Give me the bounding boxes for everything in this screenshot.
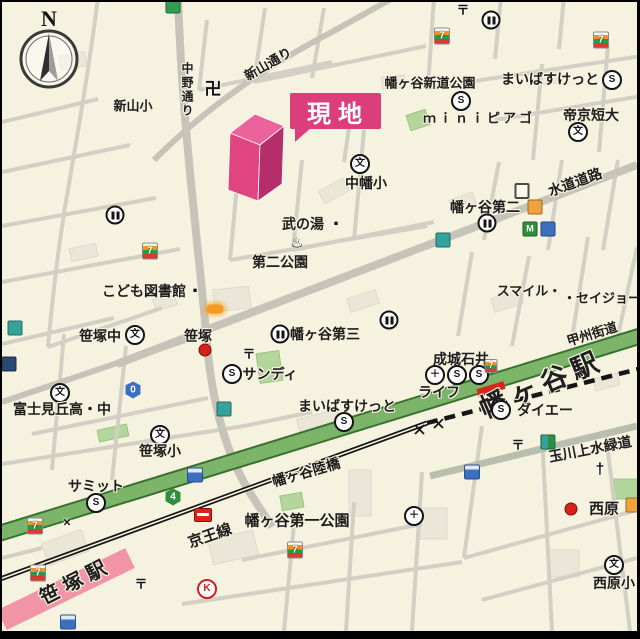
- label-shinyama-elementary: 新山小: [113, 100, 152, 113]
- school-icon: 文: [568, 122, 588, 142]
- compass-north-label: N: [41, 6, 57, 31]
- school-icon: 文: [150, 425, 170, 445]
- site-callout-text: 現地: [307, 94, 369, 129]
- building-dot: ■: [334, 221, 338, 228]
- label-hatagaya-daiichi-park: 幡ヶ谷第一公園: [244, 514, 349, 529]
- store-icon-teal: [436, 233, 451, 248]
- seven-eleven-icon: 7: [142, 243, 158, 260]
- supermarket-icon: S: [222, 364, 242, 384]
- label-seijo: ・セイジョー: [563, 292, 637, 305]
- bank-icon: [60, 615, 76, 630]
- post-office-icon: 〒: [456, 4, 469, 17]
- post-office-icon: 〒: [242, 348, 255, 361]
- label-mini-piago: ｍｉｎｉピアゴ: [423, 112, 535, 125]
- poi-circle-icon: [478, 214, 497, 233]
- poi-circle-icon: [482, 11, 501, 30]
- label-nakahata-elementary: 中幡小: [345, 176, 387, 190]
- store-icon-blue: [541, 222, 556, 237]
- school-icon: 文: [350, 154, 370, 174]
- label-nishihara: 西原: [589, 502, 619, 517]
- school-icon: 文: [604, 555, 624, 575]
- label-hatagaya-daisan: 幡ヶ谷第三: [290, 327, 360, 341]
- seven-eleven-icon: 7: [27, 518, 43, 535]
- label-sasazuka-crossing: 笹塚: [184, 329, 212, 343]
- bus-stop-dot: [565, 503, 578, 516]
- school-icon: 文: [50, 383, 70, 403]
- building-dot: ■: [193, 288, 197, 295]
- label-sasazuka-elementary: 笹塚小: [139, 444, 181, 458]
- seven-eleven-icon: 7: [593, 32, 609, 49]
- site-marker[interactable]: [228, 114, 284, 201]
- kfc-icon: K: [197, 579, 217, 599]
- hospital-icon: ＋: [404, 506, 424, 526]
- supermarket-icon: S: [602, 70, 622, 90]
- label-nakano-dori: 中野通り: [181, 62, 193, 118]
- sento-icon: ♨: [290, 236, 303, 251]
- label-daiei: ダイエー: [517, 403, 573, 417]
- temple-icon: 卍: [205, 81, 222, 98]
- label-daini-park: 第二公園: [252, 255, 308, 269]
- church-icon: †: [596, 462, 605, 478]
- label-hatagaya-daini: 幡ヶ谷第二: [450, 200, 520, 214]
- poi-circle-icon: [380, 311, 399, 330]
- store-icon-navy: [2, 357, 17, 372]
- bank-icon: [464, 465, 480, 480]
- store-icon-orange: [528, 200, 543, 215]
- store-icon-teal: [217, 402, 232, 417]
- label-sasazuka-junior-high: 笹塚中: [79, 329, 121, 343]
- shop-icon: [515, 183, 530, 199]
- supermarket-icon: S: [447, 365, 467, 385]
- compass-rose: N: [21, 6, 77, 87]
- site-callout[interactable]: 現地: [290, 93, 381, 129]
- supermarket-icon: S: [491, 400, 511, 420]
- label-fujimigaoka-school: 富士見丘高・中: [13, 402, 111, 416]
- label-hatagaya-shindo-park: 幡ヶ谷新道公園: [384, 77, 475, 90]
- label-teikyo-college: 帝京短大: [563, 108, 619, 122]
- school-icon: 文: [125, 325, 145, 345]
- bus-stop-dot: [199, 344, 212, 357]
- map-canvas[interactable]: N 新山小 中野通り 卍 新山通り 現地 幡ヶ谷新道公園 まいばすけっと S S…: [2, 2, 637, 631]
- seven-eleven-icon: 7: [485, 359, 498, 373]
- signal-badge: [207, 305, 224, 314]
- supermarket-icon: S: [334, 412, 354, 432]
- store-icon-orange: [626, 498, 638, 513]
- seven-eleven-icon: 7: [287, 542, 303, 559]
- hospital-icon: ＋: [425, 365, 445, 385]
- station-entrance-icon: [194, 508, 212, 522]
- label-summit: サミット: [68, 479, 124, 493]
- supermarket-icon: S: [451, 91, 471, 111]
- label-sandy: サンディ: [242, 367, 297, 381]
- store-icon-green-m: M: [523, 222, 538, 237]
- label-kodomo-library: こども図書館: [102, 284, 186, 298]
- label-seijo-ishii: 成城石井: [433, 352, 489, 366]
- store-icon-teal: [8, 321, 23, 336]
- supermarket-icon: S: [86, 493, 106, 513]
- label-maibasuketto-north: まいばすけっと: [501, 72, 599, 86]
- seven-eleven-icon: 7: [434, 28, 450, 45]
- bank-icon: [187, 468, 203, 483]
- poi-circle-icon: [106, 206, 125, 225]
- map-frame: N 新山小 中野通り 卍 新山通り 現地 幡ヶ谷新道公園 まいばすけっと S S…: [0, 0, 640, 639]
- poi-circle-icon: [271, 325, 290, 344]
- label-life-market: ライフ: [418, 385, 460, 399]
- post-office-icon: 〒: [511, 439, 524, 452]
- seven-eleven-icon: 7: [30, 565, 46, 582]
- label-nishihara-elementary: 西原小: [593, 576, 635, 590]
- label-take-no-yu: 武の湯: [282, 217, 324, 231]
- label-maibasuketto-south: まいばすけっと: [298, 399, 396, 413]
- store-icon-green: [166, 2, 181, 14]
- post-office-icon: 〒: [134, 578, 147, 591]
- police-box-icon: ×: [63, 516, 71, 529]
- store-icon-duo: [541, 435, 556, 450]
- label-smile-drug: スマイル・: [497, 285, 562, 298]
